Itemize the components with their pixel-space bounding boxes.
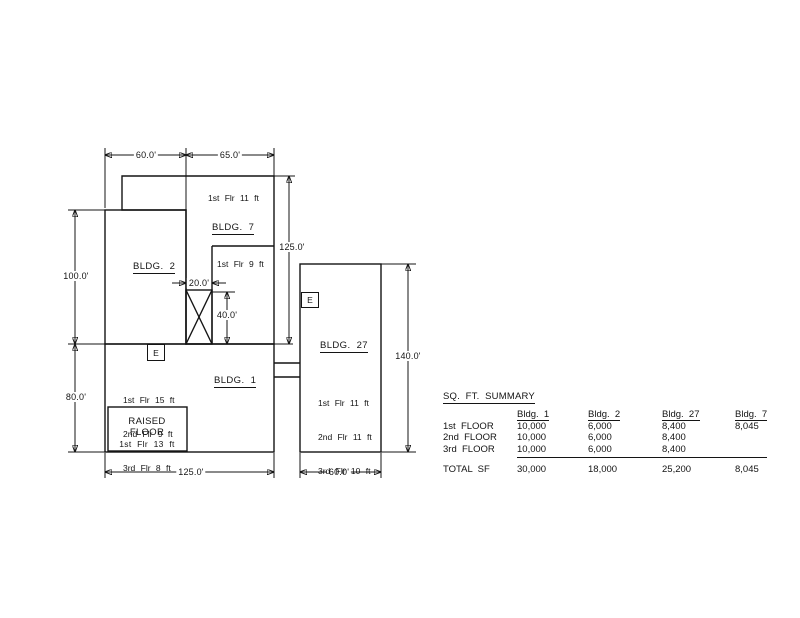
bldg2-outline xyxy=(105,210,186,344)
cell-2nd-bldg7 xyxy=(735,432,797,443)
bldg7-label: BLDG. 7 xyxy=(212,222,254,235)
bldg2-label: BLDG. 2 xyxy=(133,261,175,274)
bldg27-floor-note-1: 1st Flr 11 ft xyxy=(318,398,372,409)
dim-label-shaft-20: 20.0' xyxy=(187,278,211,288)
row-label-2nd-floor: 2nd FLOOR xyxy=(443,432,517,443)
dim-label-top-65: 65.0' xyxy=(218,150,242,160)
sqft-summary-grid: Bldg. 1 Bldg. 2 Bldg. 27 Bldg. 7 1st FLO… xyxy=(443,409,797,475)
row-label-3rd-floor: 3rd FLOOR xyxy=(443,444,517,455)
cell-3rd-bldg27: 8,400 xyxy=(662,444,735,455)
cell-1st-bldg2: 6,000 xyxy=(588,421,662,432)
cell-total-bldg2: 18,000 xyxy=(588,458,662,475)
cell-total-bldg1: 30,000 xyxy=(517,458,588,475)
dim-label-left-100: 100.0' xyxy=(61,271,90,281)
dim-label-shaft-40: 40.0' xyxy=(215,310,239,320)
elevator-box-bldg1: E xyxy=(147,344,165,361)
bldg27-floor-notes: 1st Flr 11 ft 2nd Flr 11 ft 3rd Flr 10 f… xyxy=(318,375,372,500)
raised-floor-line2: FLOOR xyxy=(108,428,186,439)
cell-total-bldg7: 8,045 xyxy=(735,458,797,475)
bldg27-label: BLDG. 27 xyxy=(320,340,368,353)
bldg7-lower-floor-note: 1st Flr 9 ft xyxy=(217,259,264,269)
bldg1-floor-note-3: 3rd Flr 8 ft xyxy=(123,463,175,474)
bldg27-floor-note-3: 3rd Flr 10 ft xyxy=(318,466,372,477)
raised-floor-note: 1st Flr 13 ft xyxy=(108,439,186,450)
cell-2nd-bldg2: 6,000 xyxy=(588,432,662,443)
cell-3rd-bldg1: 10,000 xyxy=(517,444,588,455)
dim-label-top-60: 60.0' xyxy=(134,150,158,160)
bldg1-floor-note-1: 1st Flr 15 ft xyxy=(123,395,175,406)
elevator-label-bldg1: E xyxy=(153,348,159,358)
cell-3rd-bldg7 xyxy=(735,444,797,455)
column-header-bldg7: Bldg. 7 xyxy=(735,409,797,421)
elevator-label-bldg27: E xyxy=(307,295,313,305)
header-spacer xyxy=(443,409,517,421)
cell-1st-bldg1: 10,000 xyxy=(517,421,588,432)
sqft-summary-table: SQ. FT. SUMMARY Bldg. 1 Bldg. 2 Bldg. 27… xyxy=(443,391,797,475)
cell-1st-bldg27: 8,400 xyxy=(662,421,735,432)
raised-floor-line1: RAISED xyxy=(108,417,186,428)
cell-2nd-bldg27: 8,400 xyxy=(662,432,735,443)
bldg7-upper-floor-note: 1st Flr 11 ft xyxy=(208,193,259,203)
floor-plan-linework xyxy=(0,0,800,618)
column-header-bldg2: Bldg. 2 xyxy=(588,409,662,421)
cell-1st-bldg7: 8,045 xyxy=(735,421,797,432)
bldg27-floor-note-2: 2nd Flr 11 ft xyxy=(318,432,372,443)
bldg1-label: BLDG. 1 xyxy=(214,375,256,388)
elevator-box-bldg27: E xyxy=(301,292,319,308)
column-header-bldg1: Bldg. 1 xyxy=(517,409,588,421)
row-label-1st-floor: 1st FLOOR xyxy=(443,421,517,432)
cell-total-bldg27: 25,200 xyxy=(662,458,735,475)
dim-label-bldg7-125: 125.0' xyxy=(277,242,306,252)
dim-label-left-80: 80.0' xyxy=(64,392,88,402)
cell-3rd-bldg2: 6,000 xyxy=(588,444,662,455)
appraisal-sketch-page: 60.0' 65.0' 100.0' 80.0' 125.0' 20.0' 40… xyxy=(0,0,800,618)
cell-2nd-bldg1: 10,000 xyxy=(517,432,588,443)
column-header-bldg27: Bldg. 27 xyxy=(662,409,735,421)
raised-floor-label: RAISED FLOOR 1st Flr 13 ft xyxy=(108,417,186,450)
dim-label-bottom-125: 125.0' xyxy=(176,467,205,477)
sqft-summary-title: SQ. FT. SUMMARY xyxy=(443,391,535,404)
row-label-total: TOTAL SF xyxy=(443,458,517,475)
dim-label-bldg27-140: 140.0' xyxy=(393,351,422,361)
